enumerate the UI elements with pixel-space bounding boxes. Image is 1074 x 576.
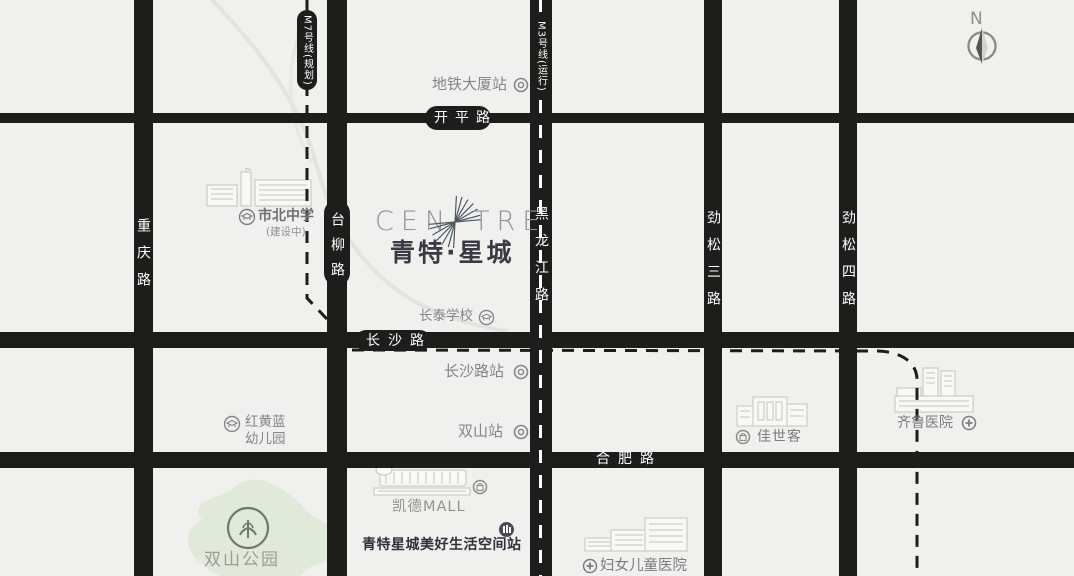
road-kaiping (0, 113, 1074, 123)
poi-label-honghuanglan-1: 红黄蓝 (245, 416, 286, 430)
logo-text-cn: 青特·星城 (390, 240, 515, 265)
poi-label-shibei: 市北中学 (258, 209, 314, 223)
poi-label-changtai: 长泰学校 (419, 310, 473, 324)
hospital-cross-icon (582, 558, 598, 574)
poi-label-funv: 妇女儿童医院 (600, 559, 687, 574)
station-label-ditiedasha: 地铁大厦站 (432, 77, 507, 92)
poi-label-kaide: 凯德MALL (392, 500, 466, 515)
road-label-changsha: 长沙路 (366, 334, 432, 348)
logo-text-tre: TRE (473, 208, 546, 235)
poi-note-shibei: (建设中) (266, 227, 306, 238)
road-hefei (0, 452, 1074, 468)
station-label-shuangshan: 双山站 (458, 424, 503, 439)
poi-label-space-station: 青特星城美好生活空间站 (362, 538, 522, 552)
poi-label-park: 双山公园 (204, 552, 280, 569)
metro-station-icon (513, 77, 529, 93)
metro-station-icon (513, 364, 529, 380)
school-icon (223, 415, 241, 433)
station-label-changshalu: 长沙路站 (444, 364, 504, 379)
road-label-tailiu: 台柳路 (330, 212, 344, 287)
road-label-jinsong3: 劲松三路 (706, 210, 720, 318)
poi-label-jiashike: 佳世客 (757, 430, 802, 444)
school-icon (238, 208, 256, 226)
hospital-cross-icon (961, 415, 977, 431)
school-icon (478, 309, 495, 326)
road-changsha (0, 332, 1074, 348)
poi-label-honghuanglan-2: 幼儿园 (245, 433, 286, 447)
location-map: M7号线(规划) M3号线(运行) 重庆路 台柳路 黑龙江路 劲松三路 劲松四路… (0, 0, 1074, 576)
road-label-chongqing: 重庆路 (136, 218, 150, 299)
road-tailiu (327, 0, 347, 576)
compass-icon (958, 14, 1006, 70)
road-label-hefei: 合肥路 (596, 452, 662, 466)
m7-line-label: M7号线(规划) (297, 10, 317, 90)
project-station-icon (498, 521, 515, 538)
shopping-icon (735, 429, 751, 445)
m3-line-label: M3号线(运行) (530, 12, 552, 100)
poi-label-qilu: 齐鲁医院 (897, 416, 953, 430)
road-label-jinsong4: 劲松四路 (841, 210, 855, 318)
metro-station-icon (513, 424, 529, 440)
road-label-kaiping: 开平路 (434, 111, 497, 125)
shopping-icon (472, 479, 488, 495)
park-tree-icon (224, 504, 272, 552)
